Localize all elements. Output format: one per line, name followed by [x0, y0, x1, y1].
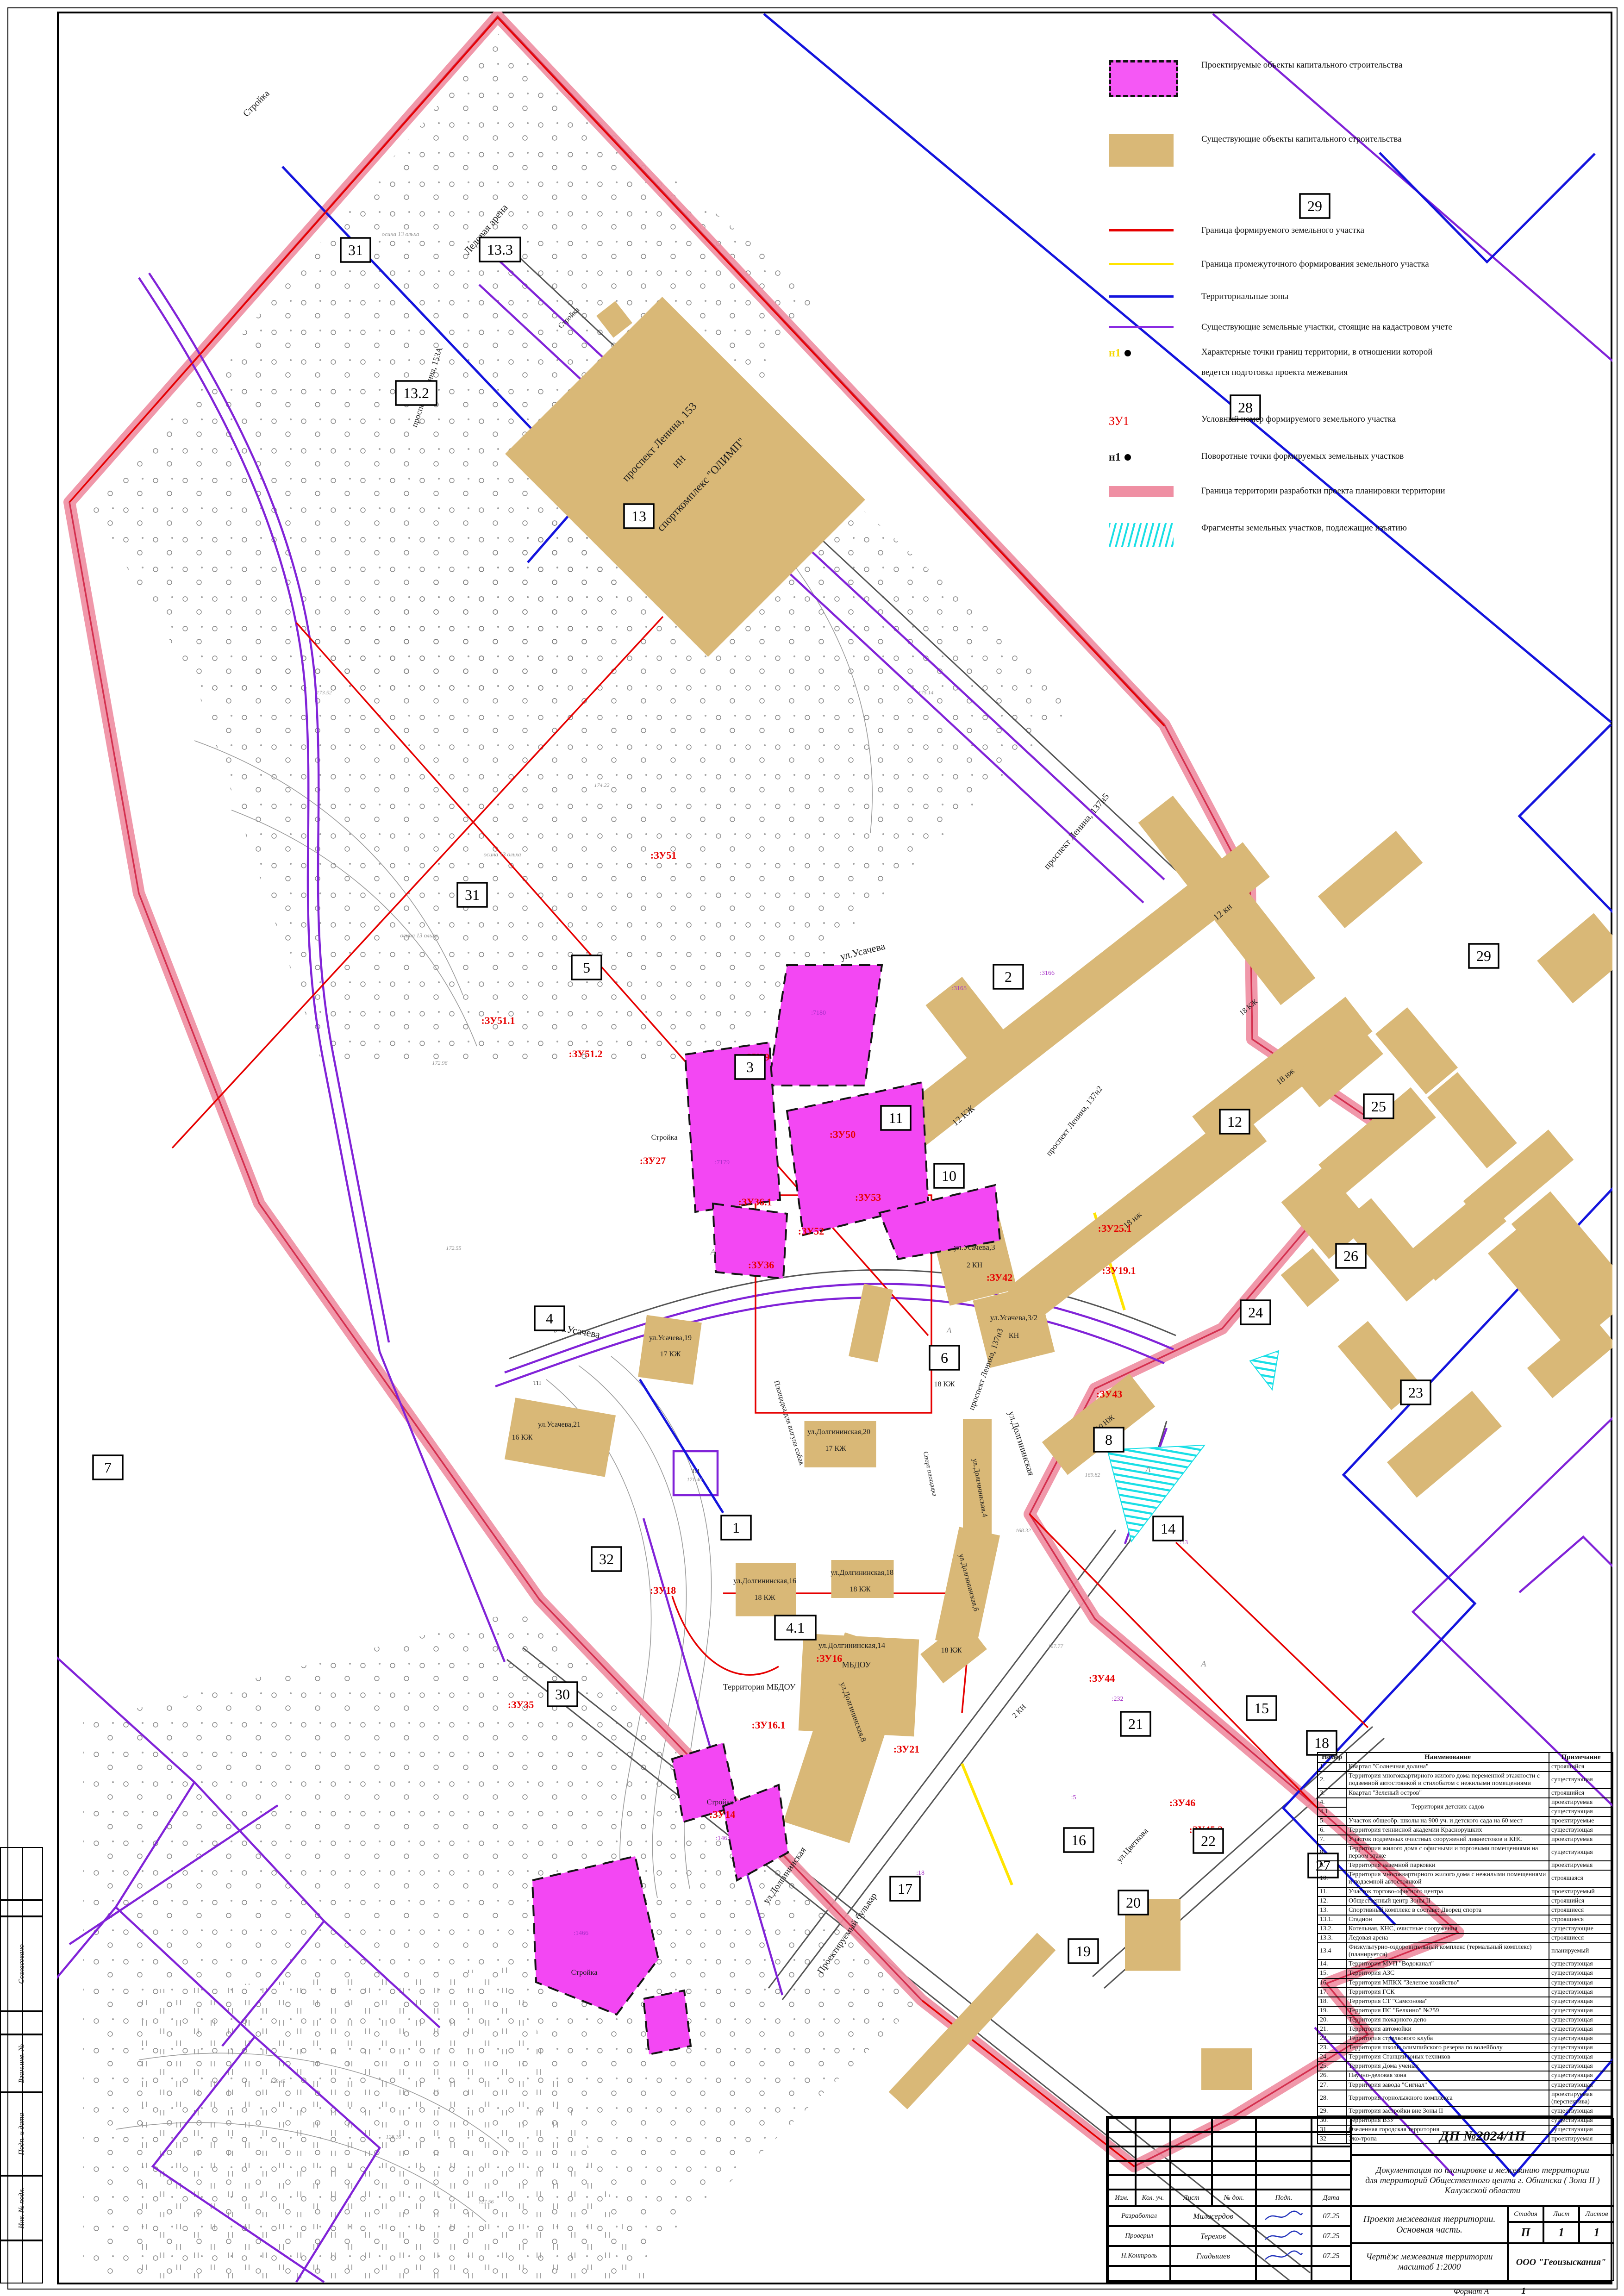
row-number: 18.	[1318, 1997, 1346, 2006]
row-name: Территория многоквартирного жилого дома …	[1346, 1772, 1549, 1788]
row-number: 15.	[1318, 1969, 1346, 1978]
row-name: Территория автомойки	[1346, 2025, 1549, 2034]
feature-number: 1	[732, 1519, 740, 1536]
map-label: ТП	[691, 1467, 699, 1474]
row-number: 17.	[1318, 1988, 1346, 1997]
row-number: 3.	[1318, 1789, 1346, 1798]
feature-number: 7	[104, 1459, 112, 1476]
feature-number: 26	[1343, 1248, 1358, 1264]
revision-cell	[1108, 2118, 1136, 2132]
row-note: строящаяся	[1549, 1870, 1613, 1887]
doc-title: Документация по планировке и межеванию т…	[1351, 2155, 1614, 2206]
map-label: ул.Усачева,3/2	[990, 1313, 1038, 1322]
revision-cell	[1312, 2146, 1351, 2161]
map-label: осина 13 ольха	[400, 932, 438, 939]
row-number: 20.	[1318, 2015, 1346, 2025]
proposed-building	[643, 1990, 691, 2054]
parcel-number-label: :ЗУ53	[855, 1192, 881, 1203]
signature	[1265, 2231, 1302, 2239]
territorial-zone-line	[640, 1379, 723, 1513]
row-note: существующая	[1549, 1844, 1613, 1861]
row-note: существующая	[1549, 2034, 1613, 2043]
parcel-number-label: :ЗУ16.1	[751, 1719, 785, 1731]
row-name: Территория стрелкового клуба	[1346, 2034, 1549, 2043]
sidebar-cell	[0, 2011, 43, 2034]
map-label: :1465	[716, 1835, 731, 1842]
map-label: :1466	[574, 1930, 588, 1937]
table-row: 27.Территория завода "Сигнал"существующа…	[1318, 2081, 1613, 2090]
parcel-number-label: :ЗУ27	[640, 1155, 666, 1167]
feature-number: 4	[546, 1310, 553, 1327]
feature-number: 4.1	[786, 1619, 805, 1636]
row-note: проектируемый	[1549, 1887, 1613, 1897]
legend-item-label: Граница территории разработки проекта пл…	[1201, 486, 1445, 496]
row-number: 4.	[1318, 1798, 1346, 1807]
table-row: 17.Территория ГСКсуществующая	[1318, 1988, 1613, 1997]
table-row: 20.Территория пожарного депосуществующая	[1318, 2015, 1613, 2025]
row-note: существующая	[1549, 2053, 1613, 2062]
table-row: 22.Территория стрелкового клубасуществую…	[1318, 2034, 1613, 2043]
feature-number: 6	[941, 1349, 948, 1366]
map-label: А	[1145, 1465, 1151, 1474]
revision-cell	[1312, 2161, 1351, 2175]
feature-number: 18	[1314, 1734, 1329, 1751]
map-label: :7179	[715, 1159, 730, 1166]
stage-header: Лист	[1543, 2206, 1579, 2222]
existing-building	[1201, 2048, 1252, 2090]
revision-cell	[1136, 2161, 1170, 2175]
map-label: Спорт площадка	[922, 1451, 938, 1497]
row-number: 4.1	[1318, 1807, 1346, 1816]
row-name: Научно-деловая зона	[1346, 2071, 1549, 2080]
row-number: 1.	[1318, 1762, 1346, 1772]
parcel-number-symbol: ЗУ1	[1109, 414, 1174, 428]
row-name: Территория теннисной академии Краснорушк…	[1346, 1826, 1549, 1835]
role-date: 07.25	[1312, 2206, 1351, 2226]
map-label: :3166	[1040, 970, 1055, 977]
table-row: 19.Территория ПС "Белкино" №259существую…	[1318, 2006, 1613, 2015]
map-label: ул.Долгининская,18	[831, 1569, 893, 1577]
role-name: Гладышев	[1170, 2246, 1256, 2266]
withdrawal-fragment	[1250, 1351, 1279, 1390]
revision-cell	[1212, 2132, 1256, 2146]
legend-item-label: Характерные точки границ территории, в о…	[1201, 347, 1432, 378]
feature-number: 13	[631, 508, 646, 524]
row-note: существующая	[1549, 1978, 1613, 1988]
map-label: 17 КЖ	[660, 1350, 681, 1358]
map-label: Стройка	[241, 88, 272, 119]
row-name: Котельная, КНС, очистные сооружения	[1346, 1924, 1549, 1934]
feature-number: 30	[555, 1686, 570, 1703]
row-name: Участок подземных очистных сооружений ли…	[1346, 1835, 1549, 1844]
legend-item-label: Условный номер формируемого земельного у…	[1201, 414, 1396, 424]
row-name: Квартал "Зеленый остров"	[1346, 1789, 1549, 1798]
map-label: ТП	[533, 1379, 541, 1386]
row-note: существующая	[1549, 1807, 1613, 1816]
row-note: проектируемые	[1549, 1816, 1613, 1826]
row-note: существующая	[1549, 2107, 1613, 2116]
feature-number: 22	[1201, 1833, 1216, 1849]
row-note: существующая	[1549, 1969, 1613, 1978]
map-label: МБДОУ	[842, 1660, 871, 1669]
sidebar-label: Инв. № подл.	[0, 2176, 43, 2240]
revision-cell	[1170, 2175, 1212, 2190]
map-label: 174.22	[594, 782, 610, 788]
row-note: существующая	[1549, 2025, 1613, 2034]
row-name: Территория горнолыжного комплекса	[1346, 2090, 1549, 2107]
row-note: строящиеся	[1549, 1915, 1613, 1924]
map-label: 175.14	[918, 689, 934, 696]
parcel-number-label: :ЗУ43	[1096, 1388, 1123, 1400]
parcel-number-label: :ЗУ16	[816, 1653, 843, 1664]
row-note: проектируемая	[1549, 1835, 1613, 1844]
parcel-number-label: :ЗУ19.1	[1102, 1265, 1136, 1276]
characteristic-point-symbol: н1	[1109, 347, 1174, 360]
map-label: Стройка	[571, 1969, 598, 1977]
role-name: Милосердов	[1170, 2206, 1256, 2226]
row-number: 9.	[1318, 1861, 1346, 1870]
feature-number: 5	[583, 959, 590, 976]
table-row: 18.Территория СТ "Самсонова"существующая	[1318, 1997, 1613, 2006]
table-row: 24.Территория Станции юных техниковсущес…	[1318, 2053, 1613, 2062]
boundary-line-swatch	[1109, 292, 1174, 298]
legend-item-label: Поворотные точки формируемых земельных у…	[1201, 451, 1404, 462]
legend-item-label: Граница промежуточного формирования земе…	[1201, 259, 1429, 269]
row-name: Участок торгово-офисного центра	[1346, 1887, 1549, 1897]
map-label: осина 13 ольха	[381, 231, 419, 237]
existing-building	[736, 1563, 796, 1616]
map-label: 18 КЖ	[754, 1594, 775, 1602]
table-row: 8.Территория жилого дома с офисными и то…	[1318, 1844, 1613, 1861]
row-number: 11.	[1318, 1887, 1346, 1897]
intermediate-boundary-line	[962, 1764, 1012, 1885]
table-header-name: Наименование	[1346, 1753, 1549, 1762]
role-signature	[1256, 2226, 1312, 2246]
map-label: ул.Цветкова	[1114, 1826, 1149, 1864]
row-number: 13.4	[1318, 1943, 1346, 1959]
row-note: существующая	[1549, 1772, 1613, 1788]
table-row: 4.Территория детских садовпроектируемая	[1318, 1798, 1613, 1807]
objects-table: Номер Наименование Примечание 1.Квартал …	[1317, 1752, 1613, 2144]
revision-cell	[1312, 2132, 1351, 2146]
row-note: существующая	[1549, 2062, 1613, 2071]
feature-number: 32	[599, 1551, 614, 1567]
revision-cell	[1312, 2118, 1351, 2132]
row-name: Спортивный комплекс в составе: Дворец сп…	[1346, 1906, 1549, 1915]
table-row: 13.3.Ледовая аренастроящиеся	[1318, 1934, 1613, 1943]
feature-number: 13.2	[403, 385, 429, 401]
role-date: 07.25	[1312, 2226, 1351, 2246]
empty-row	[1256, 2266, 1312, 2281]
parcel-number-label: :ЗУ44	[1089, 1672, 1115, 1684]
row-note: строящиеся	[1549, 1934, 1613, 1943]
row-note: существующая	[1549, 2006, 1613, 2015]
map-label: 128.45	[270, 2078, 286, 2084]
table-row: 14.Территория МУП "Водоканал"существующа…	[1318, 1959, 1613, 1969]
boundary-line-swatch	[1109, 322, 1174, 328]
parcel-number-label: :ЗУ51.2	[568, 1048, 602, 1060]
stage-value: 1	[1579, 2222, 1614, 2243]
row-note: существующая	[1549, 2081, 1613, 2090]
header-4: Подп.	[1256, 2190, 1312, 2206]
header-1: Кол. уч.	[1136, 2190, 1170, 2206]
table-row: 25.Территория Дома ученыхсуществующая	[1318, 2062, 1613, 2071]
withdrawal-fragment-swatch	[1109, 523, 1174, 547]
existing-building	[1318, 831, 1423, 928]
revision-cell	[1256, 2175, 1312, 2190]
row-name: Территория ГСК	[1346, 1988, 1549, 1997]
row-number: 27.	[1318, 2081, 1346, 2090]
revision-cell	[1256, 2132, 1312, 2146]
existing-building	[638, 1315, 702, 1385]
table-row: 13.2.Котельная, КНС, очистные сооружения…	[1318, 1924, 1613, 1934]
boundary-line-swatch	[1109, 259, 1174, 265]
table-row: 12.Общественный центр Зоны IIстроящийся	[1318, 1897, 1613, 1906]
revision-cell	[1212, 2161, 1256, 2175]
proposed-building	[768, 965, 882, 1086]
map-label: 168.32	[1016, 1527, 1031, 1534]
row-name: Территория жилого дома с офисными и торг…	[1346, 1844, 1549, 1861]
feature-number: 14	[1161, 1520, 1175, 1537]
parcel-number-label: :ЗУ21	[893, 1743, 920, 1755]
row-number: 13.1.	[1318, 1915, 1346, 1924]
parcel-number-label: :ЗУ18	[650, 1585, 676, 1596]
row-name: Территория пожарного депо	[1346, 2015, 1549, 2025]
row-number: 12.	[1318, 1897, 1346, 1906]
feature-number: 24	[1248, 1304, 1263, 1321]
table-header-note: Примечание	[1549, 1753, 1613, 1762]
boundary-line-swatch	[1109, 225, 1174, 231]
role-label: Н.Контроль	[1108, 2246, 1170, 2266]
parcel-number-label: :ЗУ52	[798, 1225, 824, 1237]
table-row: 7.Участок подземных очистных сооружений …	[1318, 1835, 1613, 1844]
map-label: А	[1201, 1659, 1207, 1668]
row-note: строящийся	[1549, 1897, 1613, 1906]
row-number: 8.	[1318, 1844, 1346, 1861]
map-label: ул.Долгининская,14	[818, 1641, 886, 1650]
header-5: Дата	[1312, 2190, 1351, 2206]
row-note: строящийся	[1549, 1762, 1613, 1772]
row-number: 28.	[1318, 2090, 1346, 2107]
map-label: 171.40	[687, 1476, 702, 1483]
revision-cell	[1256, 2118, 1312, 2132]
feature-number: 3	[746, 1059, 754, 1075]
row-name: Территория школы олимпийского резерва по…	[1346, 2043, 1549, 2053]
row-note: существующая	[1549, 1997, 1613, 2006]
map-label: 18 КЖ	[934, 1380, 955, 1388]
row-number: 24.	[1318, 2053, 1346, 2062]
map-label: 128.16	[386, 2134, 401, 2140]
stage-header: Листов	[1579, 2206, 1614, 2222]
sidebar-label: Согласовано	[0, 1916, 43, 2011]
organization: ООО "Геоизыскания"	[1508, 2243, 1614, 2281]
row-number: 21.	[1318, 2025, 1346, 2034]
feature-number: 17	[898, 1880, 912, 1897]
empty-row	[1108, 2266, 1170, 2281]
row-name: Территория Дома ученых	[1346, 2062, 1549, 2071]
revision-cell	[1170, 2132, 1212, 2146]
revision-cell	[1170, 2146, 1212, 2161]
table-row: 5.Участок общеобр. школы на 900 уч. и де…	[1318, 1816, 1613, 1826]
map-label: 17 КЖ	[825, 1445, 846, 1453]
map-label: Площадка для выгула собак	[772, 1379, 806, 1466]
parcel-number-label: :ЗУ35	[508, 1699, 534, 1710]
stage-value: 1	[1543, 2222, 1579, 2243]
row-note: существующая	[1549, 2043, 1613, 2053]
feature-number: 8	[1105, 1431, 1112, 1448]
legend-item-label: Граница формируемого земельного участка	[1201, 225, 1364, 236]
parcel-number-label: :ЗУ50	[830, 1129, 856, 1140]
row-number: 16.	[1318, 1978, 1346, 1988]
row-number: 6.	[1318, 1826, 1346, 1835]
table-row: 28.Территория горнолыжного комплексапрое…	[1318, 2090, 1613, 2107]
existing-building	[1387, 1391, 1502, 1498]
map-label: 2 КН	[967, 1261, 983, 1269]
row-name: Территория СТ "Самсонова"	[1346, 1997, 1549, 2006]
feature-number: 19	[1076, 1943, 1091, 1959]
map-label: 18 КЖ	[849, 1585, 871, 1593]
revision-cell	[1212, 2175, 1256, 2190]
map-label: ул.Долгининская,16	[733, 1577, 796, 1585]
revision-cell	[1312, 2175, 1351, 2190]
territorial-zone-line	[1519, 724, 1612, 919]
row-name: Физкультурно-оздоровительный комплекс (т…	[1346, 1943, 1549, 1959]
revision-cell	[1256, 2161, 1312, 2175]
map-label: :5	[1071, 1794, 1076, 1801]
table-row: 15.Территория АЗСсуществующая	[1318, 1969, 1613, 1978]
role-label: Проверил	[1108, 2226, 1170, 2246]
proposed-building-swatch	[1109, 60, 1174, 97]
revision-cell	[1136, 2132, 1170, 2146]
revision-cell	[1136, 2146, 1170, 2161]
map-label: 167.77	[1048, 1643, 1064, 1649]
sidebar-label: Подп. и дата	[0, 2092, 43, 2176]
row-number: 7.	[1318, 1835, 1346, 1844]
row-note: существующая	[1549, 2071, 1613, 2080]
row-number: 22.	[1318, 2034, 1346, 2043]
feature-number: 10	[942, 1167, 956, 1184]
map-label: 2 КН	[1011, 1703, 1028, 1720]
role-name: Терехов	[1170, 2226, 1256, 2246]
map-label: 127.56	[479, 2198, 494, 2205]
header-2: Лист	[1170, 2190, 1212, 2206]
row-number: 29.	[1318, 2107, 1346, 2116]
existing-building	[1537, 913, 1612, 1004]
feature-number: 15	[1254, 1700, 1269, 1716]
table-row: 13.1.Стадионстроящиеся	[1318, 1915, 1613, 1924]
drawing-title: Чертёж межевания территориимасштаб 1:200…	[1351, 2243, 1508, 2281]
parcel-number-label: :ЗУ51	[650, 849, 677, 861]
row-number: 13.3.	[1318, 1934, 1346, 1943]
row-name: Территория МПКХ "Зеленое хозяйство"	[1346, 1978, 1549, 1988]
row-number: 13.	[1318, 1906, 1346, 1915]
empty-row	[1170, 2266, 1256, 2281]
revision-cell	[1136, 2175, 1170, 2190]
feature-number: 12	[1227, 1113, 1242, 1130]
revision-cell	[1212, 2118, 1256, 2132]
feature-number: 31	[465, 886, 480, 903]
row-note: существующая	[1549, 1988, 1613, 1997]
table-row: 1.Квартал "Солнечная долина"строящийся	[1318, 1762, 1613, 1772]
parcel-number-label: :ЗУ14	[709, 1809, 736, 1820]
row-name: Территория завода "Сигнал"	[1346, 2081, 1549, 2090]
row-name: Территория МУП "Водоканал"	[1346, 1959, 1549, 1969]
map-label: ул.Долгининская,20	[807, 1428, 870, 1436]
map-label: ул.Усачева,21	[538, 1421, 581, 1429]
existing-building	[1138, 796, 1316, 1005]
revision-cell	[1108, 2146, 1136, 2161]
table-row: 9.Территория наземной парковкипроектируе…	[1318, 1861, 1613, 1870]
existing-building-swatch	[1109, 134, 1174, 167]
map-label: ул.Долгининская	[1006, 1410, 1037, 1477]
feature-number: 21	[1128, 1716, 1143, 1732]
table-row: 11.Участок торгово-офисного центрапроект…	[1318, 1887, 1613, 1897]
role-signature	[1256, 2246, 1312, 2266]
turning-point-symbol: н1	[1109, 451, 1174, 464]
table-row: 13.4Физкультурно-оздоровительный комплек…	[1318, 1943, 1613, 1959]
title-block: Изм.Кол. уч.Лист№ док.Подп.ДатаРазработа…	[1106, 2116, 1612, 2283]
parcel-number-label: :ЗУ36.1	[738, 1196, 772, 1208]
format-label: Формат А1	[1454, 2286, 1526, 2296]
row-note: проектируемая	[1549, 1798, 1613, 1807]
row-number: 25.	[1318, 2062, 1346, 2071]
row-note: существующая	[1549, 1826, 1613, 1835]
map-label: 18 КЖ	[941, 1647, 962, 1654]
table-row: 3.Квартал "Зеленый остров"строящийся	[1318, 1789, 1613, 1798]
map-label: А	[946, 1326, 952, 1335]
table-row: 16.Территория МПКХ "Зеленое хозяйство"су…	[1318, 1978, 1613, 1988]
existing-building	[1427, 1072, 1517, 1168]
feature-number: 29	[1476, 948, 1491, 964]
sidebar-label: Взам.инв. №	[0, 2034, 43, 2092]
legend-item-label: Существующие земельные участки, стоящие …	[1201, 322, 1452, 332]
legend-item-label: Территориальные зоны	[1201, 292, 1288, 302]
role-signature	[1256, 2206, 1312, 2226]
row-number: 14.	[1318, 1959, 1346, 1969]
map-label: 172.55	[446, 1245, 462, 1251]
table-row: 2.Территория многоквартирного жилого дом…	[1318, 1772, 1613, 1788]
legend-item-label: Существующие объекты капитального строит…	[1201, 134, 1402, 144]
territorial-zone-line	[1380, 153, 1595, 262]
empty-row	[1312, 2266, 1351, 2281]
row-name: Стадион	[1346, 1915, 1549, 1924]
parcel-number-label: :ЗУ46	[1169, 1797, 1196, 1809]
stage-value: П	[1508, 2222, 1543, 2243]
doc-number: ДП №2024/1П	[1351, 2118, 1614, 2155]
legend-item-label: Проектируемые объекты капитального строи…	[1201, 60, 1402, 70]
map-label: :3165	[952, 985, 967, 992]
feature-number: 11	[889, 1110, 903, 1126]
feature-number: 29	[1307, 198, 1322, 214]
feature-number: 23	[1408, 1384, 1423, 1401]
project-title: Проект межевания территории.Основная час…	[1351, 2206, 1508, 2243]
table-row: 6.Территория теннисной академии Краснору…	[1318, 1826, 1613, 1835]
row-number: 19.	[1318, 2006, 1346, 2015]
feature-number: 13.3	[487, 241, 513, 258]
table-row: 29.Территория застройки вне Зоны IIсущес…	[1318, 2107, 1613, 2116]
drawing-sheet: проспект Ленина, 153ННспорткомплекс "ОЛИ…	[0, 0, 1624, 2296]
parcel-number-label: :ЗУ51.1	[481, 1015, 515, 1026]
existing-building	[1410, 1191, 1506, 1281]
table-header-number: Номер	[1318, 1753, 1346, 1762]
header-3: № док.	[1212, 2190, 1256, 2206]
feature-number: 20	[1126, 1894, 1141, 1911]
map-label: ул.Усачева,19	[649, 1334, 692, 1342]
row-note: проектируемая (перспектива)	[1549, 2090, 1613, 2107]
signature	[1265, 2251, 1302, 2259]
sidebar-cell	[0, 1900, 43, 1916]
cadastral-parcel-line	[1519, 1537, 1612, 1592]
